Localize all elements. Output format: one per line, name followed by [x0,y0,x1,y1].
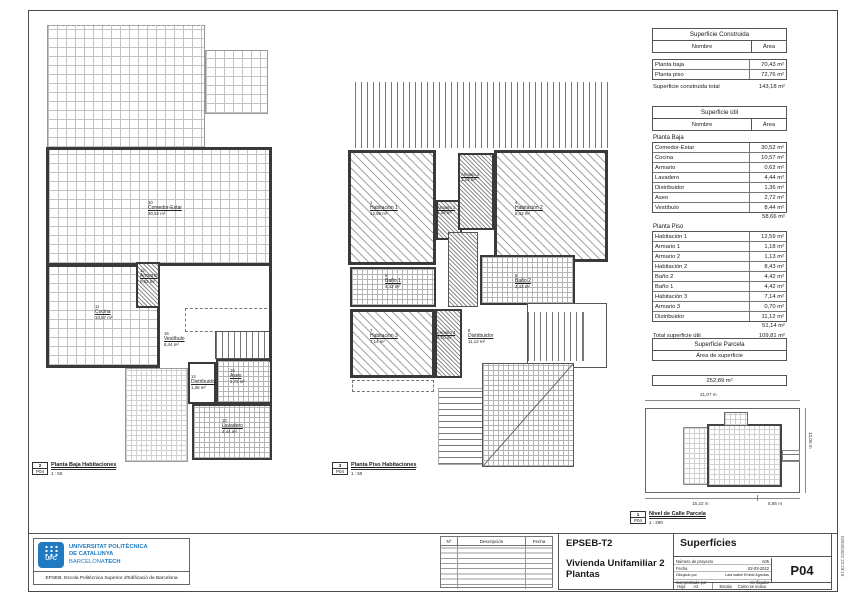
room-area: 4,42 m² [515,284,531,289]
caption-number-box: 2 P04 [32,462,48,475]
cell-name: Habitación 3 [653,292,749,301]
room-area: 0,62 m² [140,279,158,284]
cell-area: 8,44 m² [749,203,786,212]
stair-treads [528,312,583,361]
cell-area: 10,57 m² [749,153,786,162]
cell-area: 7,14 m² [749,292,786,301]
table-row: Distribuidor1,36 m² [653,183,786,193]
project-name-line1: Vivienda Unifamiliar 2 [566,558,673,569]
field-row: Número de proyecto A05 [674,558,771,565]
logo-block: UPC UNIVERSITAT POLITÈCNICA DE CATALUNYA… [33,538,190,585]
total-label: Superficie construida total [653,84,720,90]
logo-row: UPC UNIVERSITAT POLITÈCNICA DE CATALUNYA… [34,539,189,571]
cell-name: Vestíbulo [653,203,749,212]
room-area: 30,52 m² [148,211,182,216]
piso-balcony-dashed [352,380,434,392]
room-area: 1,18 m² [437,210,461,215]
project-name-line2: Plantas [566,569,673,580]
rev-col-line [457,546,458,589]
subtotal-baja: 58,66 m² [652,213,787,220]
field-value: 02-03-2022 [748,566,769,571]
room-label-habitacion-1: 1 Habitación 1 12,59 m² [370,200,398,216]
school-name: EPSEB. Escola Politècnica Superior d'Edi… [34,571,189,585]
room-label-lavadero: 13 Lavadero 4,44 m² [222,418,243,434]
table-row: Planta baja70,43 m² [653,60,786,70]
room-area: 10,57 m² [95,315,112,320]
cell-area: 70,43 m² [749,60,786,69]
escala-value: Como se indica [738,584,766,589]
table-header: Superficie útil Nombre Área [652,106,787,131]
view-title: Planta Baja Habitaciones [51,462,116,470]
room-armario-2 [458,153,494,230]
cell-area: 0,70 m² [749,302,786,311]
stair-dashed-outline [185,308,272,332]
view-sheet-ref: P04 [631,518,645,523]
caption-text: Nivel de Calle Parcela 1 : 200 [649,511,706,525]
table-row: Distribuidor11,12 m² [653,312,786,321]
baja-porch-paving [125,368,188,462]
site-dimline-top [645,400,800,401]
table-superficie-construida: Superficie Construida Nombre Área Planta… [652,28,787,90]
site-dim-bottom-right: 5,85 m [768,501,782,506]
view-scale: 1 : 50 [51,470,116,476]
room-label-armario-2: Armario 2 1,13 m² [461,172,491,182]
stair-landing [583,312,607,361]
view-caption-planta-piso: 3 P04 Planta Piso Habitaciones 1 : 50 [332,462,416,476]
table-row: Armario 21,13 m² [653,252,786,262]
cell-name: Armario 1 [653,242,749,251]
hoja-value: A2 [693,584,698,589]
project-titleblock: EPSEB-T2 Vivienda Unifamiliar 2 Plantas … [558,533,832,590]
room-label-distribuidor-piso: 8 Distribuidor 11,12 m² [468,328,493,344]
table-row: Aseo2,72 m² [653,193,786,203]
stairs-baja [215,331,272,359]
site-dim-tick [757,495,758,501]
cell-name: Distribuidor [653,183,749,192]
view-scale: 1 : 200 [649,519,706,525]
room-label-habitacion-2: 4 Habitación 2 8,43 m² [515,200,543,216]
rev-col-line [525,546,526,589]
view-caption-planta-baja: 2 P04 Planta Baja Habitaciones 1 : 50 [32,462,116,476]
baja-terrace-paving [47,25,205,148]
field-label: Número de proyecto [676,559,713,564]
room-area: 2,72 m² [230,379,245,384]
table-title: Superficie Parcela [653,339,786,351]
table-superficie-util: Superficie útil Nombre Área Planta Baja … [652,106,787,339]
cell-name: Baño 1 [653,282,749,291]
revisions-header: Nº Descripción Fecha [441,537,552,546]
drawing-sheet: { "colors": { "brand_blue": "#1f7ac2", "… [0,0,848,600]
cell-area: 0,62 m² [749,163,786,172]
field-value: Laia Isabel Embid Agredas [725,573,769,577]
room-label-distribuidor-baja: 14 Distribuidor 1,36 m² [191,374,216,390]
cell-name: Habitación 2 [653,262,749,271]
table-row: Armario 11,18 m² [653,242,786,252]
caption-number-box: 3 P04 [332,462,348,475]
piso-porch-roof [482,363,574,467]
table-row: Cocina10,57 m² [653,153,786,163]
university-line1: UNIVERSITAT POLITÈCNICA [69,544,148,552]
section-planta-baja: Planta Baja [653,135,787,141]
cell-name: Baño 2 [653,272,749,281]
view-title: Nivel de Calle Parcela [649,511,706,519]
room-area: 8,43 m² [515,211,543,216]
cell-area: 12,59 m² [749,232,786,241]
cell-area: 30,52 m² [749,143,786,152]
hoja-label: Hoja [677,584,685,589]
table-row: Habitación 37,14 m² [653,292,786,302]
view-title: Planta Piso Habitaciones [351,462,416,470]
sheet-info-fields: Número de proyecto A05 Fecha 02-03-2022 … [674,558,771,582]
rev-col-fecha: Fecha [525,537,552,545]
table-row: Comedor-Estar30,52 m² [653,143,786,153]
rev-col-num: Nº [441,537,458,545]
tech-text: TECH [105,559,121,565]
site-house-entry [724,412,748,426]
room-habitacion-2 [494,150,608,262]
cell-area: 4,42 m² [749,272,786,281]
stair-void-hatch [448,232,478,307]
cell-name: Lavadero [653,173,749,182]
room-label-vestibulo: 16 Vestíbulo 8,44 m² [164,331,185,347]
cell-name: Armario 3 [653,302,749,311]
site-dim-right: 12,00 m [808,432,813,449]
field-label: Fecha [676,566,687,571]
cell-name: Armario [653,163,749,172]
column-nombre: Nombre [653,122,751,128]
cell-name: Distribuidor [653,312,749,321]
university-name: UNIVERSITAT POLITÈCNICA DE CATALUNYA BAR… [69,544,148,567]
site-dimline-bottom [645,498,800,499]
escala-label: Escala [712,583,731,589]
field-row: Dibujado por Laia Isabel Embid Agredas [674,572,771,579]
table-columns: Nombre Área [653,119,786,130]
room-label-armario-3: Armario 3 0,70 m² [437,330,462,340]
cell-area: 2,72 m² [749,193,786,202]
room-area: 4,42 m² [385,284,401,289]
site-house-footprint [707,424,782,487]
site-porch-strip [782,450,800,462]
stairs-piso [527,303,607,368]
subtotal-piso: 51,14 m² [652,322,787,329]
table-row: Habitación 112,59 m² [653,232,786,242]
roof-diagonal-line [483,364,573,466]
upc-logo-text: UPC [38,557,64,563]
cell-name: Cocina [653,153,749,162]
parcel-value: 252,89 m² [652,375,787,386]
room-area: 0,70 m² [437,335,462,340]
table-title: Superficie Construida [653,29,786,41]
revisions-empty-rows [441,546,552,589]
project-name-cell: EPSEB-T2 Vivienda Unifamiliar 2 Plantas [559,534,673,589]
hoja-escala-row: Hoja A2 Escala Como se indica [674,582,832,589]
cell-area: 8,43 m² [749,262,786,271]
room-area: 12,59 m² [370,211,398,216]
room-label-habitacion-3: 7 Habitación 3 7,14 m² [370,328,398,344]
table-row: Vestíbulo8,44 m² [653,203,786,212]
room-label-armario-1: Armario 1 1,18 m² [437,205,461,215]
table-row: Baño 24,42 m² [653,272,786,282]
wall-segment [269,264,272,362]
upc-logo-icon: UPC [38,542,64,568]
university-line2: DE CATALUNYA [69,551,148,559]
plot-timestamp: 02/03/2022 22:29:19 [840,536,845,576]
field-value: A05 [762,559,769,564]
cell-name: Planta baja [653,60,749,69]
room-area: 4,44 m² [222,429,243,434]
room-area: 11,12 m² [468,339,493,344]
room-area: 1,13 m² [461,177,491,182]
table-subtitle: Área de superficie [653,351,786,360]
cell-name: Aseo [653,193,749,202]
room-label-bano-2: 5 Baño 2 4,42 m² [515,273,531,289]
room-label-armario-baja: 12 Armario 0,62 m² [140,268,158,284]
table-header: Superficie Construida Nombre Área [652,28,787,53]
cell-area: 4,44 m² [749,173,786,182]
table-row: Baño 14,42 m² [653,282,786,292]
sheet-number: P04 [771,558,832,582]
view-caption-site: 1 P04 Nivel de Calle Parcela 1 : 200 [630,511,706,525]
caption-text: Planta Piso Habitaciones 1 : 50 [351,462,416,476]
revisions-table: Nº Descripción Fecha [440,536,553,588]
site-dim-bottom-left: 15,22 m [692,501,709,506]
room-area: 7,14 m² [370,339,398,344]
piso-pergola-lines [355,82,608,148]
column-area: Área [751,41,786,52]
room-armario-3 [435,309,462,378]
section-planta-piso: Planta Piso [653,224,787,230]
room-area: 1,36 m² [191,385,216,390]
total-value: 143,18 m² [759,84,785,90]
table-row: Habitación 28,43 m² [653,262,786,272]
project-code: EPSEB-T2 [566,538,673,549]
cell-area: 1,13 m² [749,252,786,261]
cell-name: Habitación 1 [653,232,749,241]
cell-area: 1,18 m² [749,242,786,251]
barcelona-text: BARCELONA [69,559,105,565]
view-scale: 1 : 50 [351,470,416,476]
room-label-bano-1: 6 Baño 1 4,42 m² [385,273,401,289]
cell-area: 11,12 m² [749,312,786,321]
column-area: Área [751,119,786,130]
column-nombre: Nombre [653,44,751,50]
table-body-baja: Comedor-Estar30,52 m²Cocina10,57 m²Armar… [652,142,787,213]
table-title: Superficie útil [653,107,786,119]
sheet-title: Superfícies [674,534,832,557]
view-sheet-ref: P04 [33,469,47,474]
field-label: Dibujado por [676,573,697,577]
table-body: Planta baja70,43 m²Planta piso72,76 m² [652,59,787,80]
room-area: 8,44 m² [164,342,185,347]
room-label-comedor-estar: 10 Comedor-Estar 30,52 m² [148,200,182,216]
table-columns: Nombre Área [653,41,786,52]
table-row: Armario0,62 m² [653,163,786,173]
room-label-cocina: 11 Cocina 10,57 m² [95,304,112,320]
piso-deck-lines [438,388,487,465]
table-total: Superficie construida total 143,18 m² [652,84,787,90]
cell-name: Comedor-Estar [653,143,749,152]
cell-name: Planta piso [653,70,749,79]
table-superficie-parcela: Superficie Parcela Área de superficie 25… [652,338,787,386]
cell-area: 1,36 m² [749,183,786,192]
caption-text: Planta Baja Habitaciones 1 : 50 [51,462,116,476]
room-label-aseo: 15 Aseo 2,72 m² [230,368,245,384]
baja-terrace-paving-2 [205,50,268,114]
field-row: Fecha 02-03-2022 [674,565,771,572]
table-row: Armario 30,70 m² [653,302,786,312]
rev-col-desc: Descripción [458,539,525,544]
table-row: Lavadero4,44 m² [653,173,786,183]
site-dimline-right [805,408,806,493]
site-dim-top: 21,07 m [700,392,717,397]
caption-number-box: 1 P04 [630,511,646,524]
table-body-piso: Habitación 112,59 m²Armario 11,18 m²Arma… [652,231,787,322]
cell-area: 4,42 m² [749,282,786,291]
cell-area: 72,76 m² [749,70,786,79]
table-row: Planta piso72,76 m² [653,70,786,79]
view-sheet-ref: P04 [333,469,347,474]
cell-name: Armario 2 [653,252,749,261]
university-line3: BARCELONATECH [69,559,148,567]
table-header: Superficie Parcela Área de superficie [652,338,787,361]
